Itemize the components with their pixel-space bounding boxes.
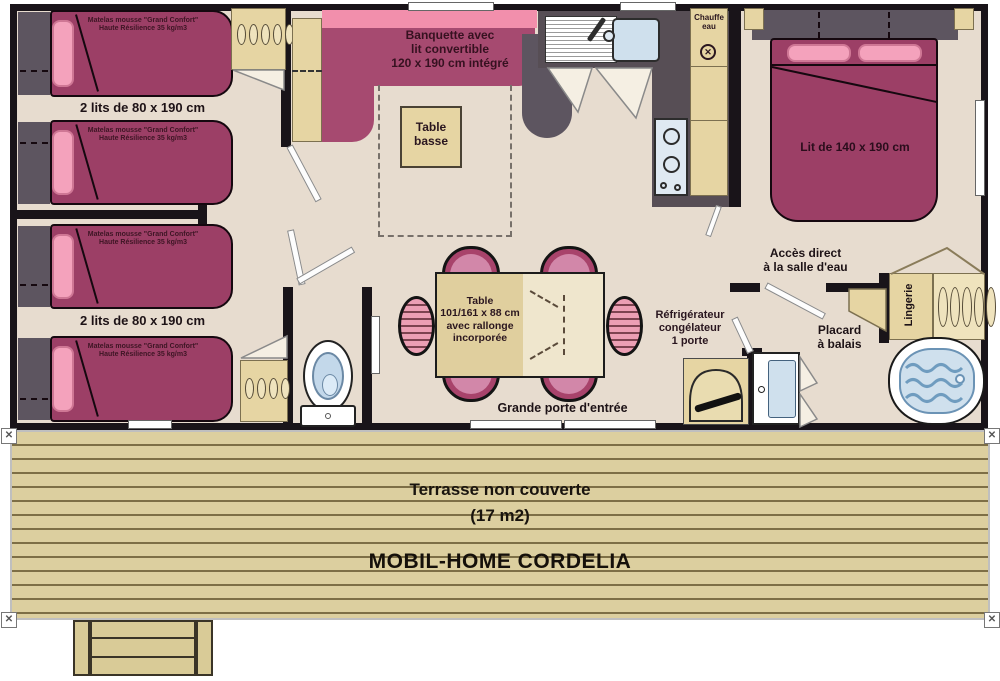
terrace-anchor-top-left: ✕ xyxy=(1,428,17,444)
terrace-label-line1: Terrasse non couverte xyxy=(280,480,720,500)
banquette-backrest xyxy=(322,10,537,28)
hanger-icon xyxy=(974,287,984,327)
fridge xyxy=(683,358,749,425)
wall-kitchen-bedroom xyxy=(729,4,741,207)
plan-title: MOBIL-HOME CORDELIA xyxy=(250,550,750,575)
nightstand-left xyxy=(744,8,764,30)
hob-burner-2 xyxy=(663,156,680,173)
wall-bathroom-top-left xyxy=(730,283,760,292)
steps-tread-line-1 xyxy=(92,637,194,639)
hanger-icon xyxy=(237,24,246,45)
entry-door-panel-right xyxy=(564,420,656,429)
table-fold-center xyxy=(563,295,565,355)
label-linen: Lingerie xyxy=(903,275,919,335)
hanger-icon xyxy=(273,24,282,45)
faucet-knob-icon xyxy=(603,30,615,42)
headboard-dash-bed3 xyxy=(20,284,48,286)
window-top-living xyxy=(408,2,494,11)
wall-bathroom-top-right xyxy=(826,283,884,292)
kitchen-cabinet-mid xyxy=(690,66,728,122)
steps-tread-line-2 xyxy=(92,656,194,658)
wc-mirror xyxy=(371,316,380,374)
floor-plan: ✕ xyxy=(0,0,1000,681)
terrace-label-line2: (17 m2) xyxy=(280,506,720,526)
window-master-right xyxy=(975,100,985,196)
window-bedroom2-bottom xyxy=(128,420,172,429)
hanger-icon xyxy=(257,378,266,399)
label-mattress-bed2: Matelas mousse "Grand Confort" Haute Rés… xyxy=(68,127,218,144)
steps-treads xyxy=(90,620,196,676)
sheet-line-double xyxy=(772,64,936,66)
water-heater-valve-icon: ✕ xyxy=(700,44,716,60)
dining-stool-right xyxy=(606,296,643,356)
wardrobe1-hangers xyxy=(237,24,294,45)
living-shelf-column xyxy=(292,18,322,142)
hanger-icon xyxy=(245,378,254,399)
window-top-kitchen xyxy=(620,2,676,11)
hanger-icon xyxy=(249,24,258,45)
headboard-bed2 xyxy=(18,122,50,204)
label-coffee-table: Table basse xyxy=(401,120,461,148)
hanger-icon xyxy=(269,378,278,399)
label-beds-room1: 2 lits de 80 x 190 cm xyxy=(60,100,225,115)
headboard-double-bed xyxy=(752,10,958,40)
washbasin-panel xyxy=(768,360,796,418)
label-mattress-bed3: Matelas mousse "Grand Confort" Haute Rés… xyxy=(68,231,218,248)
headboard-bed1 xyxy=(18,12,50,95)
dining-stool-left xyxy=(398,296,435,356)
hanger-icon xyxy=(962,287,972,327)
steps-rail-right xyxy=(196,620,213,676)
wall-between-left-bedrooms xyxy=(10,210,202,219)
label-dining-table: Table 101/161 x 88 cm avec rallonge inco… xyxy=(438,295,522,345)
headboard-bed3 xyxy=(18,226,50,307)
label-water-heater: Chauffe eau xyxy=(691,13,727,32)
wardrobe2-hangers xyxy=(245,378,290,399)
label-double-bed: Lit de 140 x 190 cm xyxy=(775,140,935,154)
hob-burner-1 xyxy=(663,128,680,145)
label-banquette: Banquette avec lit convertible 120 x 190… xyxy=(360,28,540,70)
hanger-icon xyxy=(261,24,270,45)
label-mattress-bed4: Matelas mousse "Grand Confort" Haute Rés… xyxy=(68,343,218,360)
label-fridge: Réfrigérateur congélateur 1 porte xyxy=(645,309,735,348)
steps-rail-left xyxy=(73,620,90,676)
hanger-icon xyxy=(938,287,948,327)
bathtub-drain xyxy=(955,374,965,384)
headboard-dash-left xyxy=(818,12,820,38)
entry-door-panel-left xyxy=(470,420,562,429)
label-bathroom-access: Accès direct à la salle d'eau xyxy=(748,246,863,274)
nightstand-right xyxy=(954,8,974,30)
headboard-dash-bed2 xyxy=(20,142,48,144)
headboard-dash-right xyxy=(888,12,890,38)
label-beds-room2: 2 lits de 80 x 190 cm xyxy=(60,313,225,328)
washbasin-handle xyxy=(758,386,765,393)
terrace-anchor-bottom-right: ✕ xyxy=(984,612,1000,628)
label-entry-door: Grande porte d'entrée xyxy=(460,401,665,416)
hob-knob-1 xyxy=(660,182,667,189)
terrace-anchor-top-right: ✕ xyxy=(984,428,1000,444)
pillow-double-right xyxy=(858,44,922,62)
sink-basin xyxy=(612,18,660,62)
pillow-double-left xyxy=(787,44,851,62)
hanger-icon xyxy=(986,287,996,327)
shelf-dash xyxy=(292,70,322,72)
linen-hangers xyxy=(938,287,996,327)
hanger-icon xyxy=(950,287,960,327)
headboard-dash-bed1 xyxy=(20,70,48,72)
label-broom-closet: Placard à balais xyxy=(797,323,882,351)
headboard-dash-bed4 xyxy=(20,398,48,400)
terrace-anchor-bottom-left: ✕ xyxy=(1,612,17,628)
toilet-bowl-drain xyxy=(322,374,338,396)
hanger-icon xyxy=(281,378,290,399)
label-mattress-bed1: Matelas mousse "Grand Confort" Haute Rés… xyxy=(68,17,218,34)
hob-knob-2 xyxy=(674,184,681,191)
toilet-button xyxy=(325,413,331,419)
headboard-bed4 xyxy=(18,338,50,420)
kitchen-cabinet-low xyxy=(690,120,728,196)
